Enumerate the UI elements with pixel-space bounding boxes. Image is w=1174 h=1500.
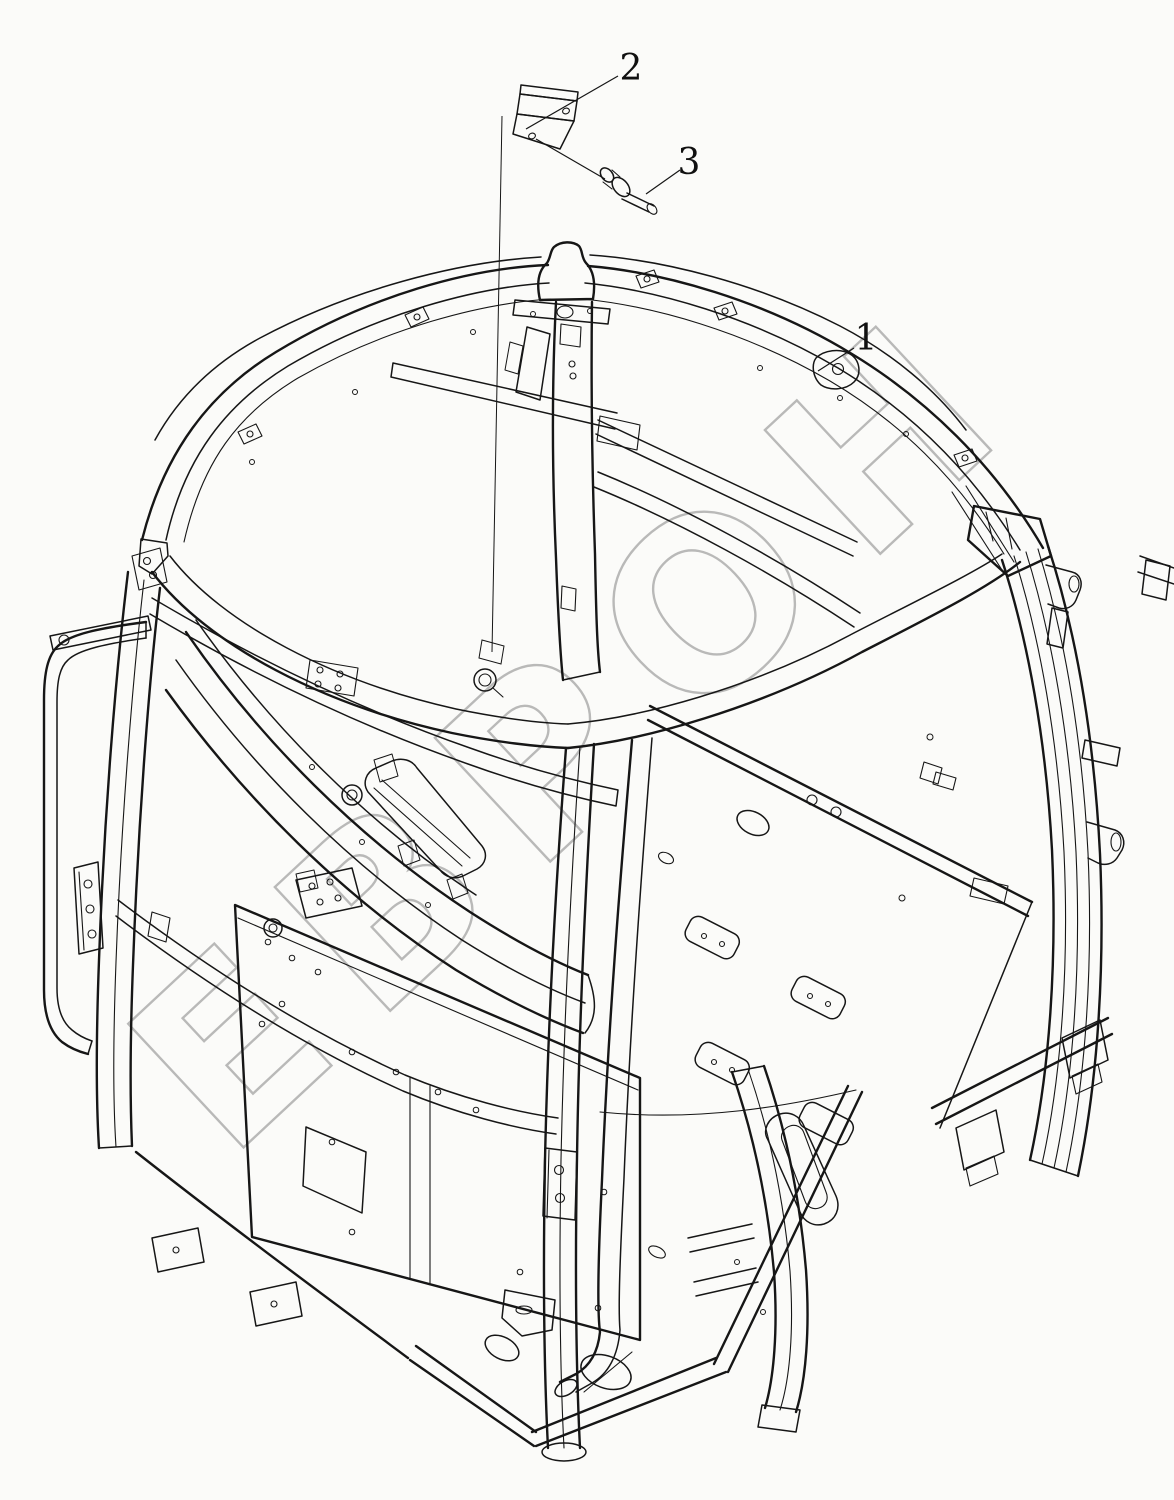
plate-part [513,85,578,149]
cab-frame-parts-illustration: ЕВРОН [0,0,1174,1500]
callout-3: 3 [678,142,701,183]
callout-2: 2 [620,48,643,89]
vertical-reference-line [492,116,502,652]
callout-1: 1 [855,318,878,359]
right-rear-pillar [1002,546,1174,1176]
diagram-page: ЕВРОН [0,0,1174,1500]
leader-line-3 [646,170,680,194]
leader-plate-to-rivet [536,139,605,179]
right-front-pillar [732,1066,838,1432]
